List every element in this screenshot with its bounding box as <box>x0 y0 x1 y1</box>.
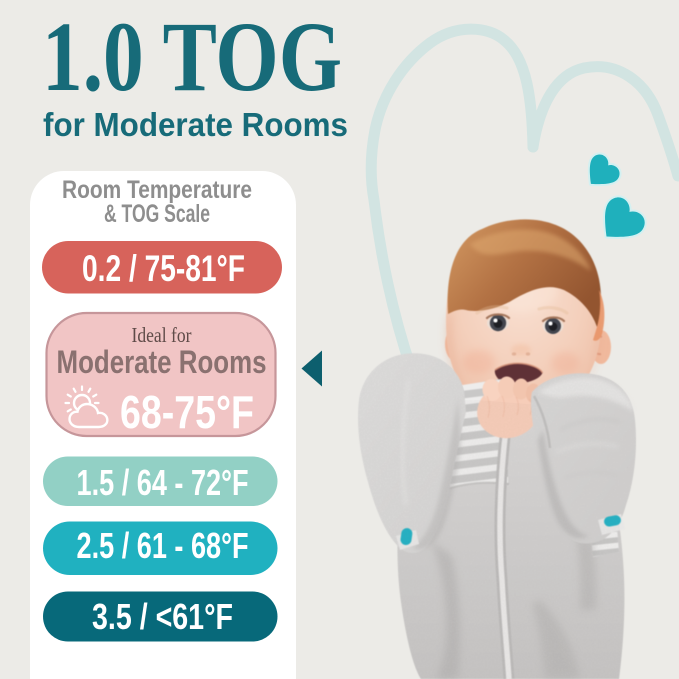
svg-text:for Moderate Rooms: for Moderate Rooms <box>43 106 348 143</box>
svg-text:1.5 / 64 - 72°F: 1.5 / 64 - 72°F <box>77 462 249 503</box>
svg-text:Moderate Rooms: Moderate Rooms <box>57 344 267 380</box>
svg-text:1.0 TOG: 1.0 TOG <box>42 1 342 112</box>
svg-text:68-75°F: 68-75°F <box>120 386 254 438</box>
svg-text:0.2 / 75-81°F: 0.2 / 75-81°F <box>82 248 245 289</box>
svg-text:3.5 / <61°F: 3.5 / <61°F <box>92 596 233 637</box>
svg-text:2.5 / 61 - 68°F: 2.5 / 61 - 68°F <box>77 525 249 566</box>
svg-text:& TOG Scale: & TOG Scale <box>104 200 210 228</box>
